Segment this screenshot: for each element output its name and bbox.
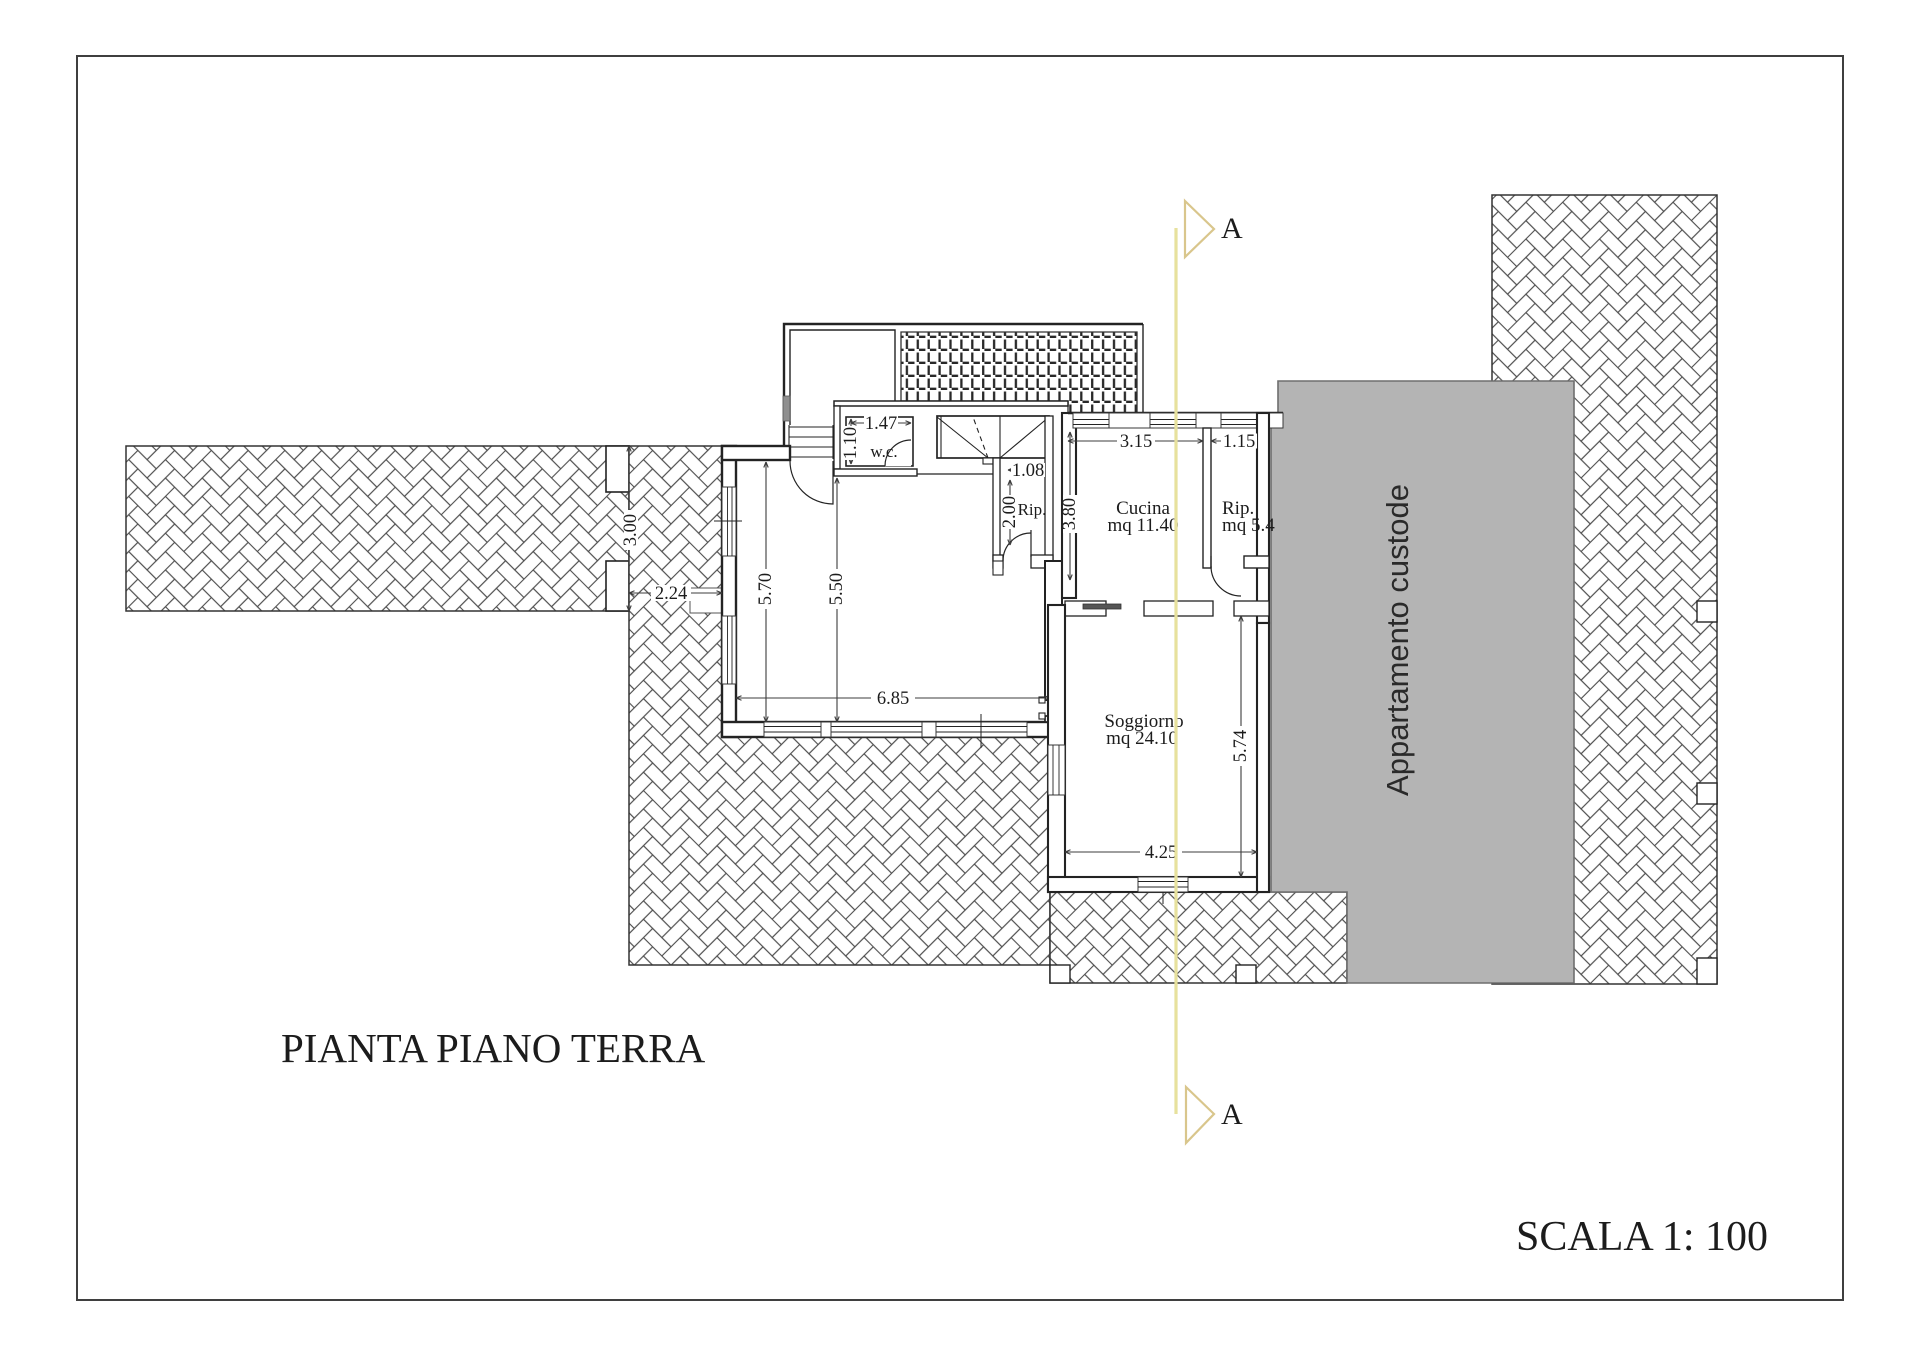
svg-text:Rip.: Rip. — [1018, 500, 1047, 519]
svg-text:mq 24.10: mq 24.10 — [1106, 728, 1178, 749]
svg-text:4.25: 4.25 — [1145, 843, 1177, 863]
svg-text:Appartamento custode: Appartamento custode — [1380, 484, 1415, 796]
svg-text:A: A — [1221, 212, 1243, 245]
svg-text:SCALA 1: 100: SCALA 1: 100 — [1516, 1214, 1768, 1260]
svg-text:3.80: 3.80 — [1060, 498, 1080, 530]
svg-text:6.85: 6.85 — [877, 689, 909, 709]
svg-text:PIANTA PIANO TERRA: PIANTA PIANO TERRA — [281, 1025, 706, 1071]
svg-text:5.50: 5.50 — [827, 573, 847, 605]
svg-text:mq 11.40: mq 11.40 — [1107, 515, 1178, 536]
svg-text:5.74: 5.74 — [1231, 730, 1251, 762]
svg-text:5.70: 5.70 — [756, 573, 776, 605]
svg-text:2.24: 2.24 — [655, 584, 687, 604]
svg-text:A: A — [1221, 1098, 1243, 1131]
svg-text:1.10: 1.10 — [841, 427, 861, 459]
svg-text:3.00: 3.00 — [621, 514, 641, 546]
svg-text:1.15: 1.15 — [1223, 432, 1255, 452]
svg-text:w.c.: w.c. — [870, 442, 897, 461]
svg-text:mq 5.4: mq 5.4 — [1222, 515, 1275, 536]
svg-text:1.47: 1.47 — [865, 414, 897, 434]
svg-text:3.15: 3.15 — [1120, 432, 1152, 452]
svg-text:1.08: 1.08 — [1012, 461, 1044, 481]
